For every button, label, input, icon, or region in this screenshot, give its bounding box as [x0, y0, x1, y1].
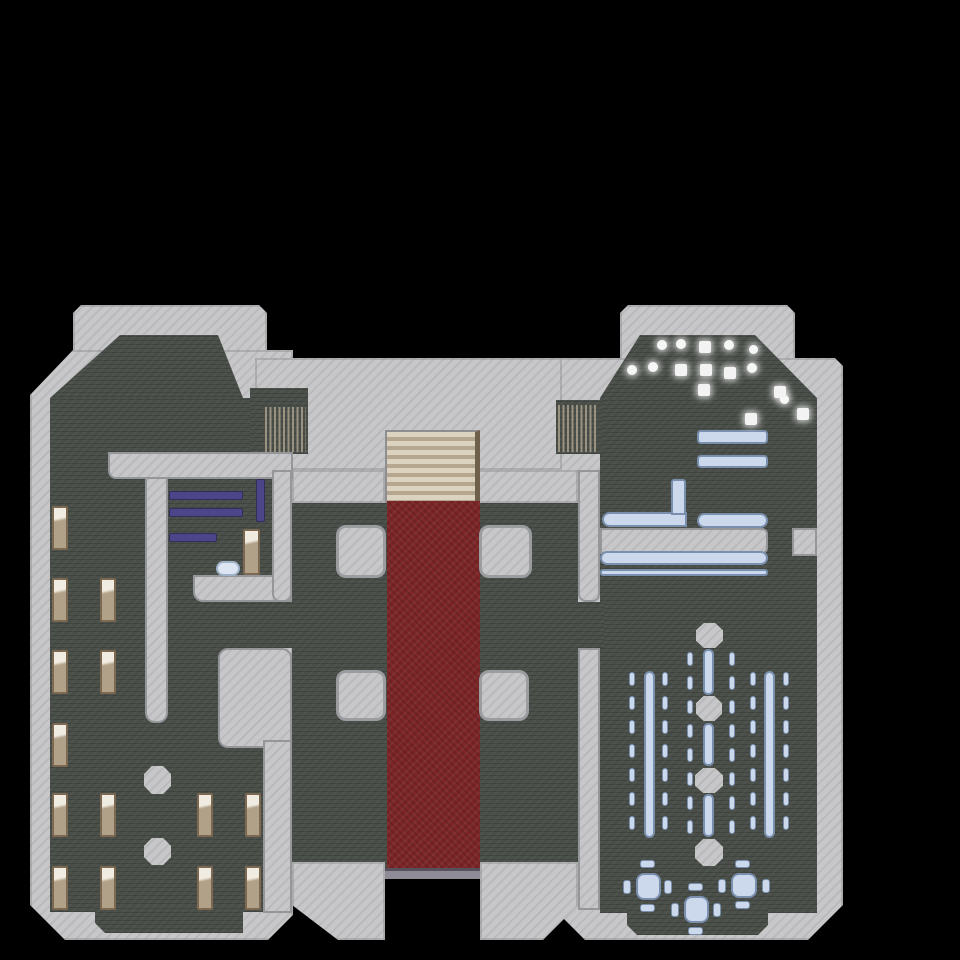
loot-item	[657, 340, 667, 350]
dining-chair	[783, 816, 789, 830]
bed	[100, 793, 116, 837]
dining-chair	[783, 744, 789, 758]
bed	[197, 793, 213, 837]
dining-chair	[687, 820, 693, 834]
table-chair	[664, 880, 672, 894]
bed	[52, 650, 68, 694]
portcullis-right	[558, 405, 598, 452]
dining-chair	[729, 700, 735, 714]
bed	[245, 793, 261, 837]
round-table	[731, 873, 757, 898]
bed	[100, 866, 116, 910]
loot-item	[648, 362, 658, 372]
dining-chair	[783, 672, 789, 686]
loot-item	[724, 340, 734, 350]
table-chair	[735, 901, 750, 909]
dining-chair	[729, 772, 735, 786]
table	[697, 455, 768, 468]
game-map-screen	[0, 0, 960, 960]
dining-table-left	[644, 671, 655, 838]
dorm-column	[144, 838, 171, 865]
dining-chair	[662, 672, 668, 686]
dining-chair	[629, 816, 635, 830]
dining-chair	[687, 652, 693, 666]
loot-item	[627, 365, 637, 375]
loot-item	[745, 413, 757, 425]
hall-pillar-sw	[336, 670, 386, 721]
dining-table-center	[703, 794, 714, 837]
table	[697, 513, 768, 528]
dorm-north-wall	[108, 452, 293, 479]
hall-south-wall-right	[480, 862, 578, 940]
dining-chair	[629, 672, 635, 686]
dorm-mid-wall	[145, 477, 168, 723]
loot-item	[747, 363, 757, 373]
dining-table-center	[703, 649, 714, 695]
loot-item	[675, 364, 687, 376]
table-chair	[762, 879, 770, 893]
shelf	[169, 491, 243, 500]
portcullis-left	[265, 407, 306, 452]
dining-chair	[783, 720, 789, 734]
loot-item	[700, 364, 712, 376]
round-table	[636, 873, 661, 900]
hall-pillar-se	[479, 670, 529, 721]
dorm-column	[144, 766, 171, 794]
south-door-threshold	[385, 868, 480, 879]
shelf	[169, 508, 243, 517]
shelf	[169, 533, 217, 542]
table-chair	[671, 903, 679, 917]
dining-chair	[662, 816, 668, 830]
dining-column	[696, 696, 722, 721]
dining-chair	[729, 652, 735, 666]
dining-chair	[629, 768, 635, 782]
dining-chair	[662, 696, 668, 710]
dining-chair	[662, 744, 668, 758]
loot-item	[774, 386, 786, 398]
dining-chair	[729, 676, 735, 690]
hall-pillar-ne	[479, 525, 532, 578]
dining-chair	[750, 696, 756, 710]
loot-item	[724, 367, 736, 379]
staircase	[385, 430, 480, 503]
bed	[52, 866, 68, 910]
table-chair	[688, 927, 703, 935]
bed	[245, 866, 261, 910]
dining-chair	[629, 720, 635, 734]
dining-chair	[750, 816, 756, 830]
dining-column	[695, 768, 723, 793]
table-chair	[718, 879, 726, 893]
loot-item	[676, 339, 686, 349]
dining-chair	[687, 700, 693, 714]
hall-pillar-nw	[336, 525, 386, 578]
map-canvas	[0, 0, 960, 960]
table-chair	[640, 860, 655, 868]
round-table	[684, 896, 709, 923]
dining-table-right	[764, 671, 775, 838]
dining-chair	[783, 792, 789, 806]
red-carpet	[387, 501, 480, 870]
door-east-floor	[578, 602, 604, 648]
dining-chair	[729, 748, 735, 762]
dining-chair	[687, 748, 693, 762]
bed	[100, 578, 116, 622]
hall-east-wall-south	[578, 648, 600, 910]
cabinet	[243, 529, 260, 575]
dining-chair	[687, 772, 693, 786]
dining-chair	[729, 724, 735, 738]
dining-chair	[662, 792, 668, 806]
bed	[52, 578, 68, 622]
dining-chair	[783, 768, 789, 782]
hall-east-wall-north	[578, 470, 600, 602]
bed	[52, 506, 68, 550]
dining-chair	[687, 676, 693, 690]
shelf-vertical	[256, 479, 265, 522]
long-bench	[600, 569, 768, 576]
bed	[52, 723, 68, 767]
table-chair	[735, 860, 750, 868]
wing-left-floor-south	[95, 905, 243, 933]
bed	[52, 793, 68, 837]
dining-chair	[750, 720, 756, 734]
library-wall-stub	[792, 528, 817, 556]
loot-item	[699, 341, 711, 353]
stairs-side-wall-left	[292, 470, 385, 503]
table-l-vertical	[671, 479, 686, 515]
loot-item	[749, 345, 758, 354]
dining-table-center	[703, 723, 714, 766]
dining-chair	[662, 768, 668, 782]
dining-chair	[662, 720, 668, 734]
dining-chair	[629, 792, 635, 806]
dining-chair	[750, 792, 756, 806]
loot-item	[797, 408, 809, 420]
dining-chair	[729, 820, 735, 834]
dining-column	[695, 839, 723, 866]
table-chair	[623, 880, 631, 894]
dining-chair	[750, 768, 756, 782]
dining-chair	[750, 672, 756, 686]
long-table	[600, 551, 768, 565]
pillow	[216, 561, 240, 576]
dining-chair	[729, 796, 735, 810]
table-chair	[640, 904, 655, 912]
dorm-east-wall-strip	[263, 740, 292, 913]
loot-item	[698, 384, 710, 396]
dorm-east-wall-block	[218, 648, 292, 748]
stairs-side-wall-right	[478, 470, 578, 503]
bed	[197, 866, 213, 910]
table	[697, 430, 768, 444]
dining-chair	[687, 796, 693, 810]
table-chair	[688, 883, 703, 891]
dining-chair	[629, 696, 635, 710]
dining-column	[696, 623, 723, 648]
dining-chair	[783, 696, 789, 710]
hall-west-wall-north	[272, 470, 292, 602]
hall-south-wall-left	[292, 862, 385, 940]
table-chair	[713, 903, 721, 917]
dining-chair	[750, 744, 756, 758]
bed	[100, 650, 116, 694]
dining-chair	[687, 724, 693, 738]
dining-chair	[629, 744, 635, 758]
